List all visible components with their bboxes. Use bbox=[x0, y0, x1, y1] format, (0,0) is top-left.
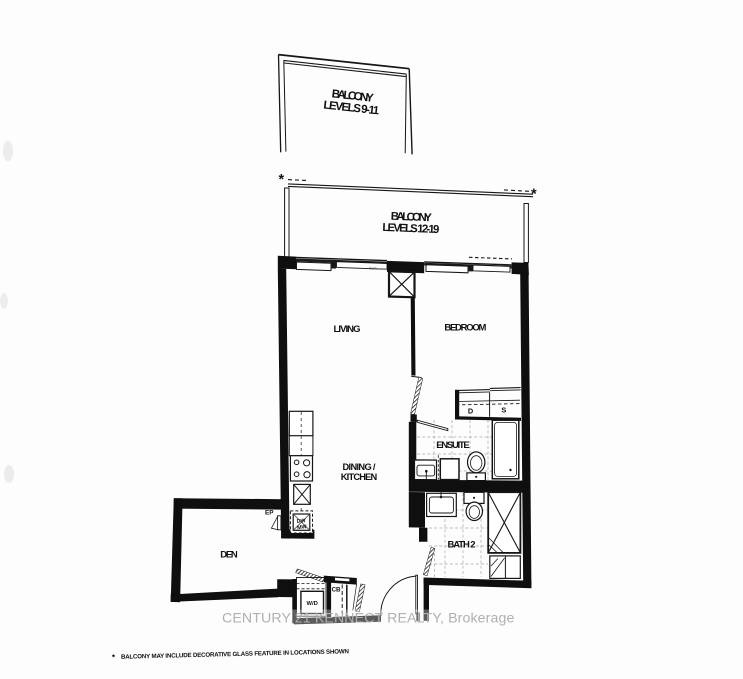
svg-text:LIVING: LIVING bbox=[334, 324, 361, 335]
svg-text:*: * bbox=[279, 172, 285, 188]
svg-text:W/D: W/D bbox=[307, 601, 318, 607]
svg-text:KITCHEN: KITCHEN bbox=[341, 472, 378, 482]
svg-text:DEN: DEN bbox=[220, 550, 238, 561]
svg-text:S: S bbox=[501, 406, 506, 415]
svg-text:DINING /: DINING / bbox=[343, 462, 376, 472]
svg-text:LEVELS 12-19: LEVELS 12-19 bbox=[382, 222, 439, 236]
svg-text:BEDROOM: BEDROOM bbox=[444, 323, 486, 334]
svg-text:*: * bbox=[531, 187, 537, 203]
svg-text:BATH 2: BATH 2 bbox=[448, 539, 476, 550]
svg-text:ENSUITE: ENSUITE bbox=[436, 440, 470, 451]
svg-text:6cm: 6cm bbox=[369, 266, 377, 271]
svg-text:CB: CB bbox=[332, 587, 341, 594]
svg-text:EP: EP bbox=[265, 510, 274, 517]
svg-text:CENTURY 21 KENNECT REALTY, Bro: CENTURY 21 KENNECT REALTY, Brokerage bbox=[222, 611, 514, 627]
svg-text:D: D bbox=[468, 407, 474, 416]
svg-text:MW: MW bbox=[297, 524, 308, 531]
